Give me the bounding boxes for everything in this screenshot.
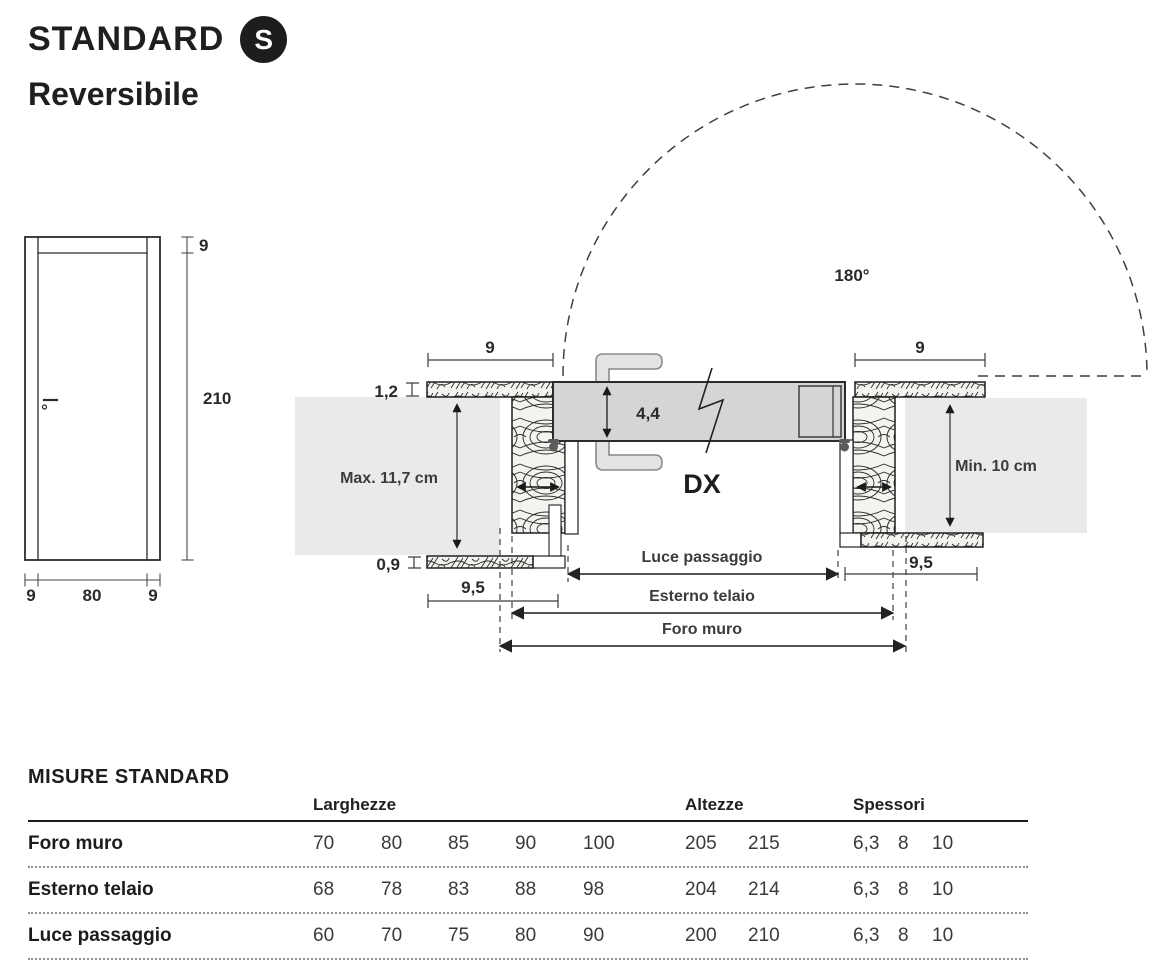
door-swing-arc	[563, 84, 1147, 376]
cell: 78	[381, 879, 448, 901]
cell: 214	[748, 879, 853, 901]
table-header-row: Larghezze Altezze Spessori	[28, 795, 1028, 822]
table-row: Esterno telaio 68 78 83 88 98 204 214 6,…	[28, 868, 1028, 914]
cell: 8	[898, 925, 932, 947]
cell: 85	[448, 833, 515, 855]
cell: 204	[685, 879, 748, 901]
cell: 70	[381, 925, 448, 947]
col-header-spessori: Spessori	[853, 795, 1028, 815]
cell: 210	[748, 925, 853, 947]
cell: 6,3	[853, 833, 898, 855]
row-label: Foro muro	[28, 833, 313, 855]
cell: 98	[583, 879, 685, 901]
technical-drawing: 9 210 9 80 9 Max. 11,7 cm Min. 10 cm 180…	[0, 0, 1169, 700]
architrave-thickness-label: 1,2	[374, 382, 398, 401]
handle-top-icon	[596, 354, 662, 383]
front-dim-bottom-center: 80	[83, 586, 102, 605]
row-label: Esterno telaio	[28, 879, 313, 901]
front-dim-bottom-left: 9	[26, 586, 35, 605]
cell: 10	[932, 925, 1028, 947]
cell: 90	[583, 925, 685, 947]
cell: 215	[748, 833, 853, 855]
cell: 100	[583, 833, 685, 855]
swing-angle-label: 180°	[834, 266, 869, 285]
front-dim-height: 210	[203, 389, 231, 408]
cell: 83	[448, 879, 515, 901]
cell: 10	[932, 879, 1028, 901]
cell: 80	[381, 833, 448, 855]
cell: 10	[932, 833, 1028, 855]
front-door-outline	[25, 237, 160, 560]
foro-muro-label: Foro muro	[662, 621, 742, 638]
luce-passaggio-label: Luce passaggio	[642, 549, 763, 566]
cell: 88	[515, 879, 583, 901]
table-title: MISURE STANDARD	[28, 766, 1028, 789]
cell: 6,3	[853, 879, 898, 901]
door-front-view: 9 210 9 80 9	[25, 236, 231, 605]
col-header-larghezze: Larghezze	[313, 795, 685, 815]
table-row: Foro muro 70 80 85 90 100 205 215 6,3 8 …	[28, 822, 1028, 868]
handle-bottom-icon	[596, 440, 662, 470]
cell: 205	[685, 833, 748, 855]
leaf-thickness-label: 4,4	[636, 404, 660, 423]
front-dim-frame-top: 9	[199, 236, 208, 255]
hand-label: DX	[683, 469, 721, 499]
jamb-depth-right-label: 9,5	[909, 553, 933, 572]
frame-width-right-label: 9	[915, 338, 924, 357]
cell: 68	[313, 879, 381, 901]
wall-min-label: Min. 10 cm	[955, 458, 1037, 475]
table-row: Luce passaggio 60 70 75 80 90 200 210 6,…	[28, 914, 1028, 960]
row-label: Luce passaggio	[28, 925, 313, 947]
col-header-altezze: Altezze	[685, 795, 853, 815]
frame-width-left-label: 9	[485, 338, 494, 357]
front-dim-bottom-right: 9	[148, 586, 157, 605]
cell: 75	[448, 925, 515, 947]
jamb-depth-left-label: 9,5	[461, 578, 485, 597]
esterno-telaio-label: Esterno telaio	[649, 588, 755, 605]
cell: 70	[313, 833, 381, 855]
misure-standard-table: MISURE STANDARD Larghezze Altezze Spesso…	[28, 766, 1028, 960]
cell: 6,3	[853, 925, 898, 947]
architrave-bottom-label: 0,9	[376, 555, 400, 574]
cell: 8	[898, 879, 932, 901]
cell: 80	[515, 925, 583, 947]
cell: 90	[515, 833, 583, 855]
lock-block	[799, 386, 841, 437]
cell: 60	[313, 925, 381, 947]
cell: 200	[685, 925, 748, 947]
cell: 8	[898, 833, 932, 855]
door-leaf-section: 4,4	[548, 354, 850, 470]
wall-max-label: Max. 11,7 cm	[340, 470, 438, 487]
